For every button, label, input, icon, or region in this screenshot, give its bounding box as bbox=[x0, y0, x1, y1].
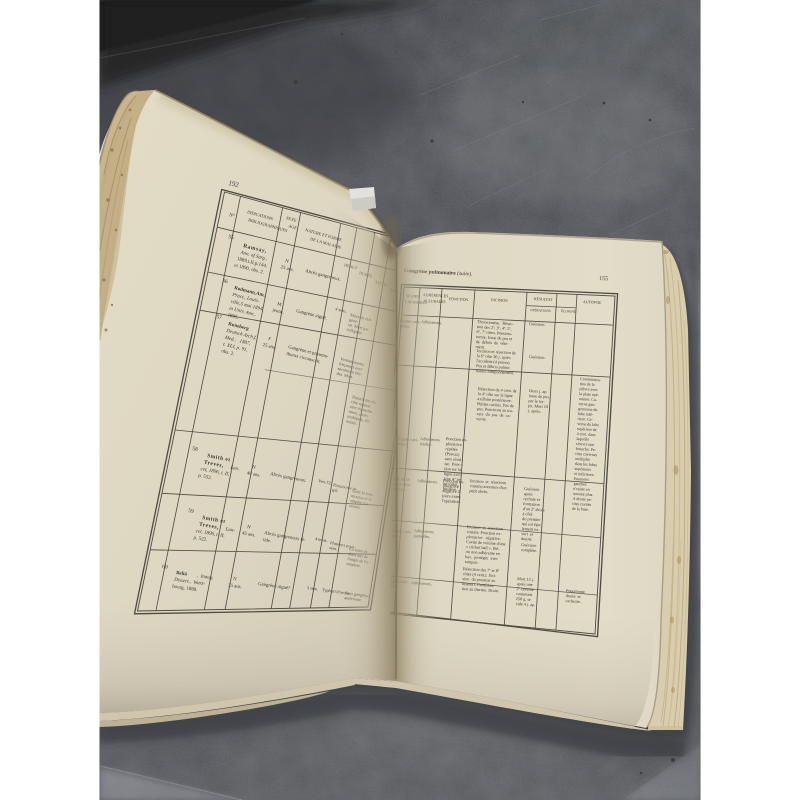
svg-text:drainé.: drainé. bbox=[521, 536, 533, 542]
svg-text:Guérison.: Guérison. bbox=[529, 354, 546, 360]
svg-text:RÉSULTAT: RÉSULTAT bbox=[534, 296, 553, 302]
svg-text:j. après.: j. après. bbox=[527, 408, 541, 414]
svg-text:ÉLOIGNÉ: ÉLOIGNÉ bbox=[561, 308, 576, 314]
svg-text:complète.: complète. bbox=[521, 547, 538, 553]
svg-text:60: 60 bbox=[162, 564, 169, 571]
svg-text:verne.: verne. bbox=[476, 416, 487, 422]
svg-text:155: 155 bbox=[599, 276, 608, 282]
svg-text:cachexie.: cachexie. bbox=[565, 598, 581, 604]
svg-text:tampon.: tampon. bbox=[465, 559, 479, 565]
svg-text:Guérison.: Guérison. bbox=[529, 321, 546, 327]
svg-text:de la base.: de la base. bbox=[572, 506, 589, 512]
